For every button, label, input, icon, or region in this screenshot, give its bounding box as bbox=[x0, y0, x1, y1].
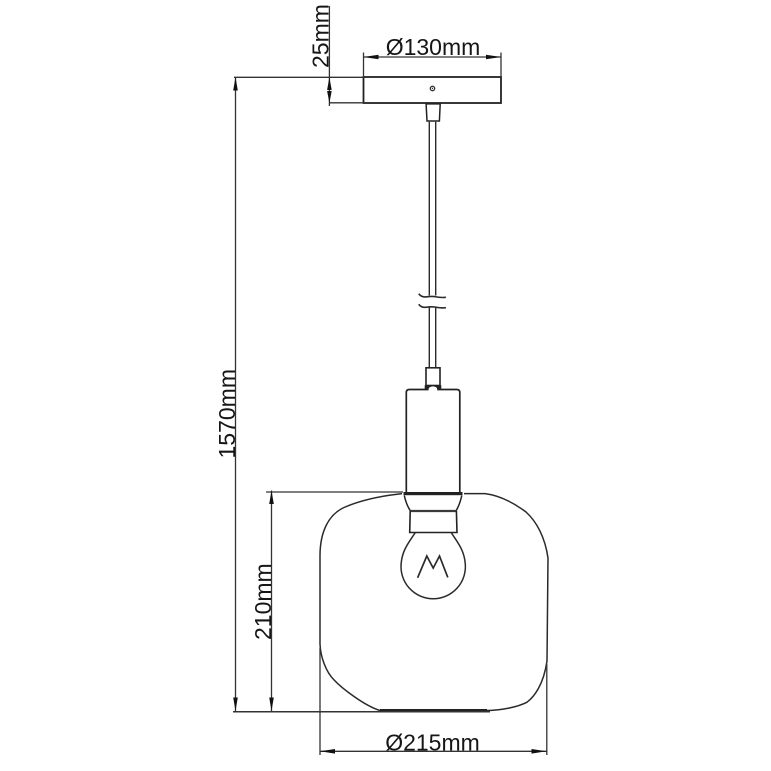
svg-text:210mm: 210mm bbox=[250, 563, 276, 640]
svg-text:1570mm: 1570mm bbox=[214, 369, 240, 458]
svg-text:Ø215mm: Ø215mm bbox=[385, 730, 480, 756]
svg-text:Ø130mm: Ø130mm bbox=[386, 34, 481, 60]
svg-text:25mm: 25mm bbox=[308, 4, 334, 68]
